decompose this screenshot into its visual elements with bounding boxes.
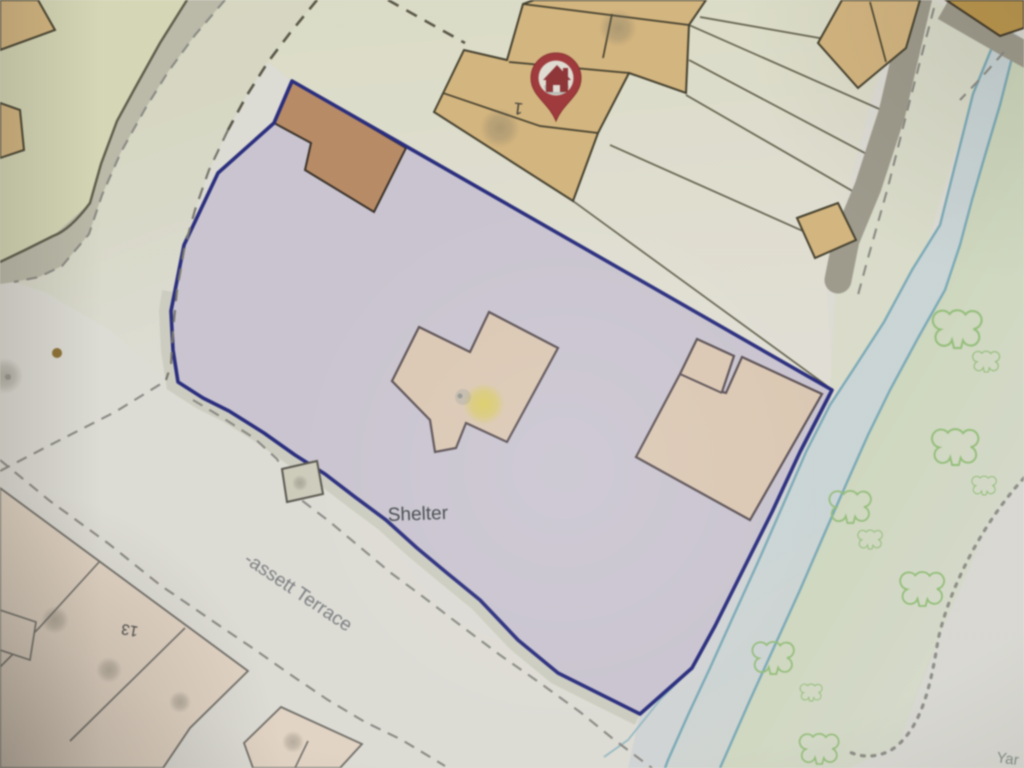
svg-text:Yar: Yar bbox=[995, 749, 1019, 768]
svg-text:13: 13 bbox=[120, 620, 139, 640]
svg-text:Shelter: Shelter bbox=[387, 503, 449, 526]
